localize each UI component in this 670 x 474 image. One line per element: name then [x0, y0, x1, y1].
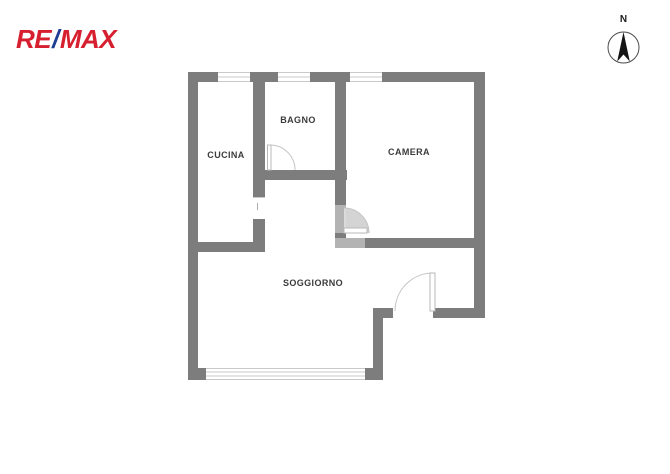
wall-bottom-seg1	[188, 368, 206, 380]
bagno-door	[240, 138, 302, 176]
wall-cucina-bottom	[188, 242, 265, 252]
camera-door	[328, 198, 374, 250]
wall-top-seg3	[310, 72, 350, 82]
logo-slash: /	[51, 24, 60, 54]
logo-re: RE	[16, 24, 51, 54]
compass-north-label: N	[603, 14, 644, 25]
wall-notch-vertical	[373, 308, 383, 380]
logo-max: MAX	[60, 24, 116, 54]
cucina-opening-marker	[253, 197, 265, 221]
north-arrow-icon	[606, 30, 642, 66]
remax-logo: RE/MAX	[16, 24, 116, 55]
wall-top-seg4	[382, 72, 485, 82]
window-camera	[350, 72, 382, 82]
wall-right	[474, 72, 485, 318]
floorplan-page: RE/MAX N	[0, 0, 670, 474]
wall-left	[188, 72, 198, 380]
opening-tick	[257, 203, 258, 210]
room-label-soggiorno: SOGGIORNO	[283, 278, 343, 288]
window-bagno	[278, 72, 310, 82]
wall-top-seg2	[250, 72, 278, 82]
room-label-camera: CAMERA	[388, 147, 430, 157]
entry-door	[388, 266, 440, 322]
window-cucina	[218, 72, 250, 82]
room-label-bagno: BAGNO	[280, 115, 316, 125]
window-soggiorno	[206, 368, 365, 380]
room-label-cucina: CUCINA	[207, 150, 244, 160]
